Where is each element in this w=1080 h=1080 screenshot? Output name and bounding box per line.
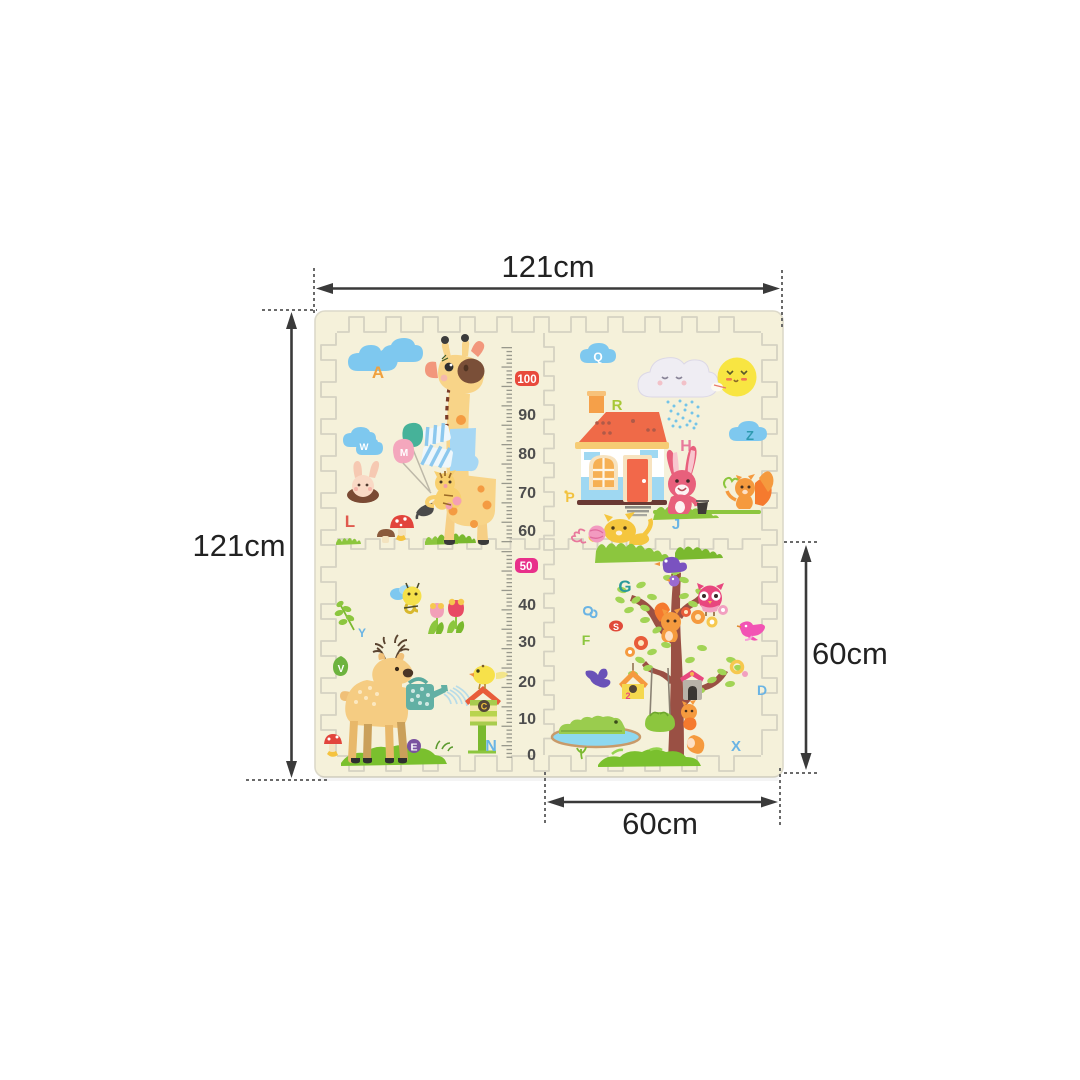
svg-text:60cm: 60cm	[622, 806, 698, 841]
svg-text:C: C	[481, 702, 488, 712]
svg-text:E: E	[410, 742, 417, 754]
svg-text:N: N	[485, 738, 497, 755]
svg-text:121cm: 121cm	[501, 249, 594, 284]
svg-text:R: R	[612, 397, 623, 414]
svg-text:20: 20	[518, 674, 536, 691]
svg-text:60cm: 60cm	[812, 636, 888, 671]
svg-text:10: 10	[518, 711, 536, 728]
svg-text:Q: Q	[593, 350, 602, 364]
svg-text:Y: Y	[358, 626, 366, 640]
svg-text:X: X	[731, 738, 741, 755]
svg-text:M: M	[400, 448, 408, 459]
svg-text:W: W	[360, 442, 369, 453]
svg-text:121cm: 121cm	[192, 528, 285, 563]
svg-text:L: L	[345, 512, 355, 531]
svg-text:A: A	[372, 363, 384, 382]
svg-text:V: V	[338, 664, 345, 675]
svg-text:30: 30	[518, 634, 536, 651]
svg-text:40: 40	[518, 597, 536, 614]
svg-text:F: F	[582, 632, 591, 648]
svg-text:Z: Z	[746, 428, 754, 443]
svg-text:100: 100	[517, 374, 536, 386]
svg-text:70: 70	[518, 485, 536, 502]
svg-text:80: 80	[518, 446, 536, 463]
svg-text:60: 60	[518, 523, 536, 540]
svg-text:D: D	[757, 682, 767, 698]
svg-text:50: 50	[520, 561, 533, 573]
svg-text:90: 90	[518, 407, 536, 424]
svg-text:0: 0	[527, 747, 536, 764]
svg-text:J: J	[672, 516, 680, 533]
svg-text:2: 2	[625, 691, 630, 701]
svg-text:S: S	[613, 622, 619, 632]
svg-text:G: G	[618, 577, 631, 596]
